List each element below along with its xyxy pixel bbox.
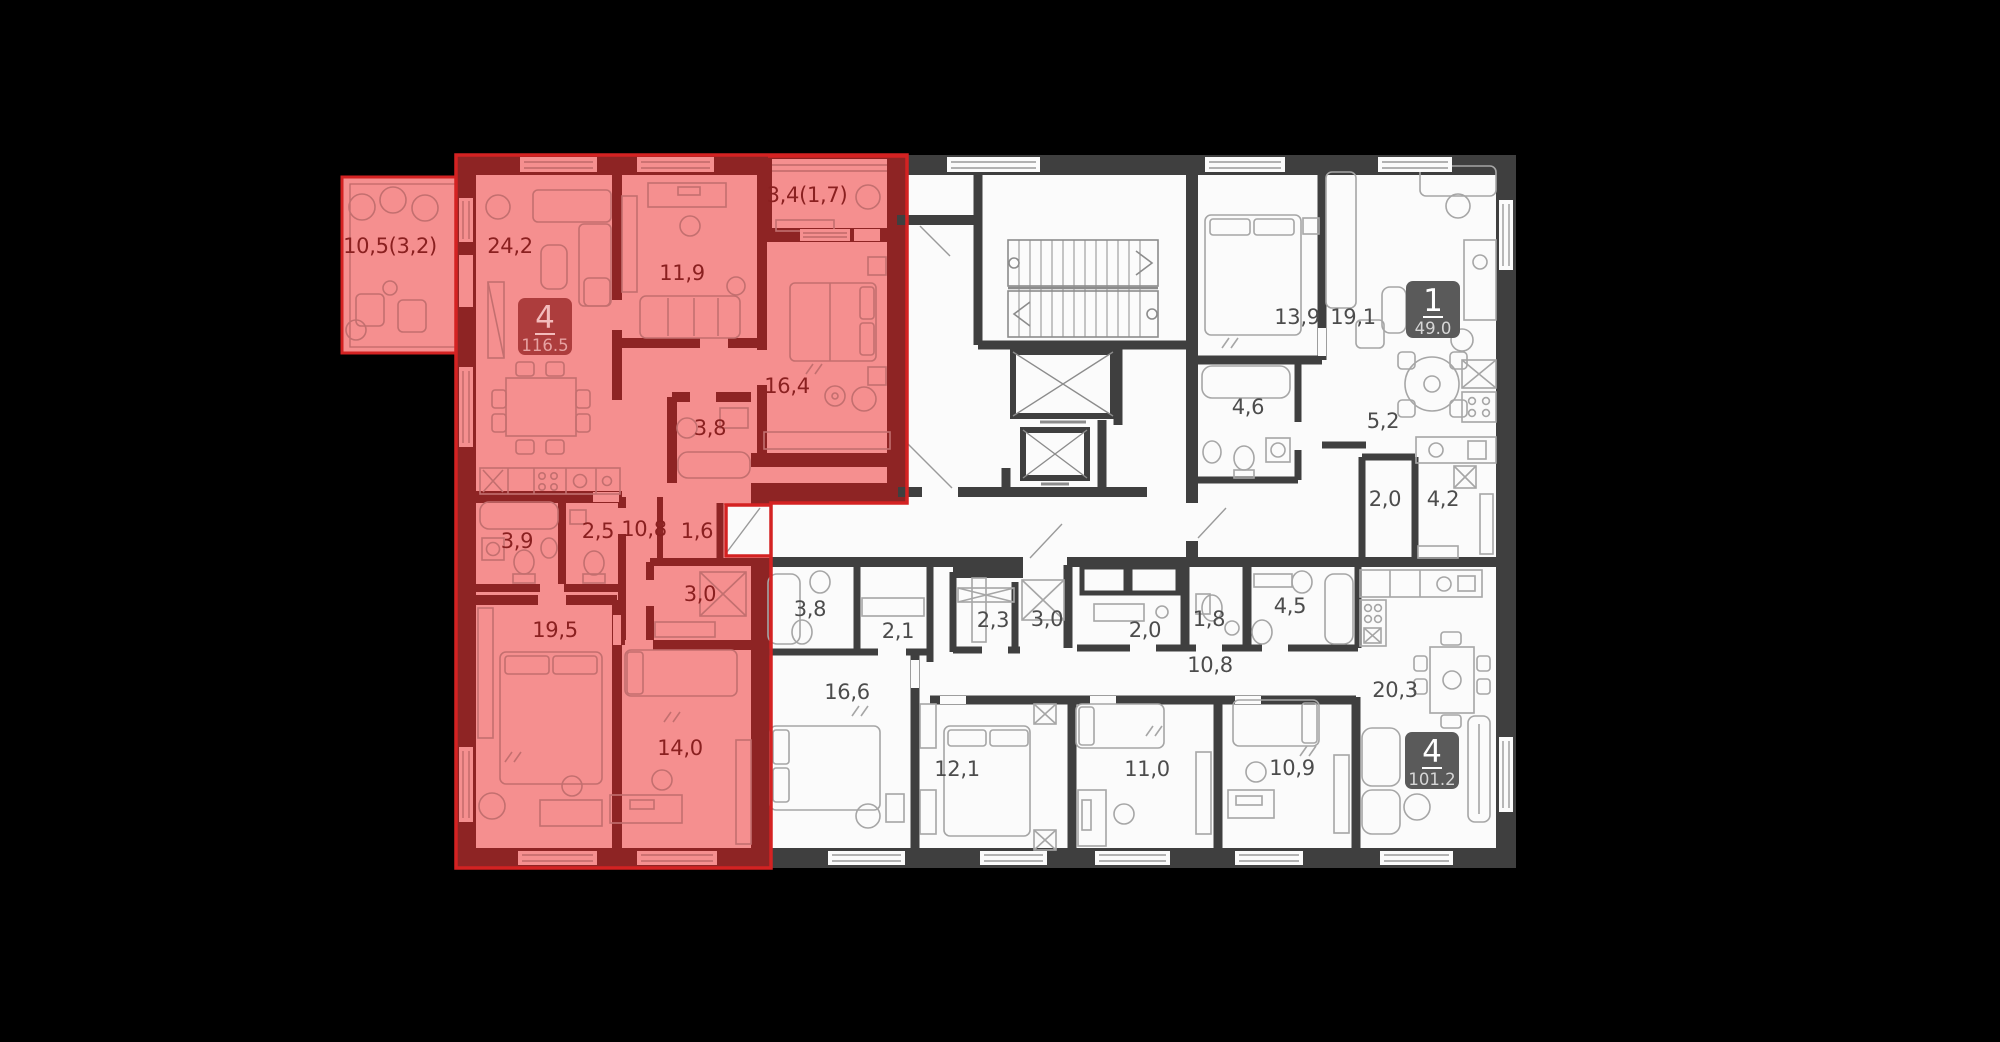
floor-plan: 10,5(3,2)24,211,93,4(1,7)16,43,83,92,510… (0, 0, 2000, 1042)
room-area-label: 2,0 (1129, 618, 1162, 642)
room-area-label: 3,4(1,7) (767, 183, 848, 207)
floor-plan-stage: 10,5(3,2)24,211,93,4(1,7)16,43,83,92,510… (0, 0, 2000, 1042)
badge-rooms-count: 4 (1422, 734, 1442, 770)
room-area-label: 10,8 (1187, 653, 1233, 677)
room-area-label: 4,5 (1274, 594, 1307, 618)
room-area-label: 5,2 (1367, 409, 1400, 433)
window (828, 851, 905, 865)
room-area-label: 3,9 (501, 529, 534, 553)
window (1499, 737, 1513, 812)
room-area-label: 11,9 (659, 261, 705, 285)
room-area-label: 12,1 (934, 757, 980, 781)
room-area-label: 13,9 (1274, 305, 1320, 329)
room-area-label: 11,0 (1124, 757, 1170, 781)
room-area-label: 4,2 (1427, 487, 1460, 511)
badge-total-area: 49.0 (1415, 319, 1452, 338)
badge-total-area: 116.5 (521, 336, 568, 355)
room-area-label: 3,0 (684, 582, 717, 606)
badge-rooms-count: 4 (535, 300, 555, 336)
room-area-label: 3,8 (694, 416, 727, 440)
room-area-label: 2,3 (977, 608, 1010, 632)
room-area-label: 3,0 (1031, 607, 1064, 631)
apartment-badge-apt-4room-right[interactable]: 4101.2 (1405, 732, 1459, 789)
room-area-label: 19,5 (532, 618, 578, 642)
room-area-label: 2,5 (582, 519, 615, 543)
room-area-label: 19,1 (1330, 305, 1376, 329)
window (980, 851, 1047, 865)
room-area-label: 3,8 (794, 597, 827, 621)
badge-total-area: 101.2 (1408, 770, 1455, 789)
room-area-label: 24,2 (487, 234, 533, 258)
room-area-label: 16,6 (824, 680, 870, 704)
room-area-label: 1,6 (681, 519, 714, 543)
room-area-label: 2,0 (1369, 487, 1402, 511)
room-area-label: 10,8 (621, 517, 667, 541)
room-area-label: 20,3 (1372, 678, 1418, 702)
apartment-badge-apt-4room-highlighted[interactable]: 4116.5 (518, 298, 572, 355)
window (1095, 851, 1170, 865)
apartment-hotspot-four-room-right[interactable] (771, 562, 1496, 848)
room-area-label: 10,5(3,2) (343, 234, 437, 258)
room-area-label: 10,9 (1269, 756, 1315, 780)
room-area-label: 16,4 (764, 374, 810, 398)
window (1499, 200, 1513, 270)
room-area-label: 4,6 (1232, 395, 1265, 419)
apartment-badge-apt-1room[interactable]: 149.0 (1406, 281, 1460, 338)
window (947, 157, 1040, 172)
room-area-label: 1,8 (1193, 607, 1226, 631)
badge-rooms-count: 1 (1423, 283, 1443, 319)
room-area-label: 14,0 (657, 736, 703, 760)
window (1380, 851, 1453, 865)
room-area-label: 2,1 (882, 619, 915, 643)
window (1235, 851, 1303, 865)
